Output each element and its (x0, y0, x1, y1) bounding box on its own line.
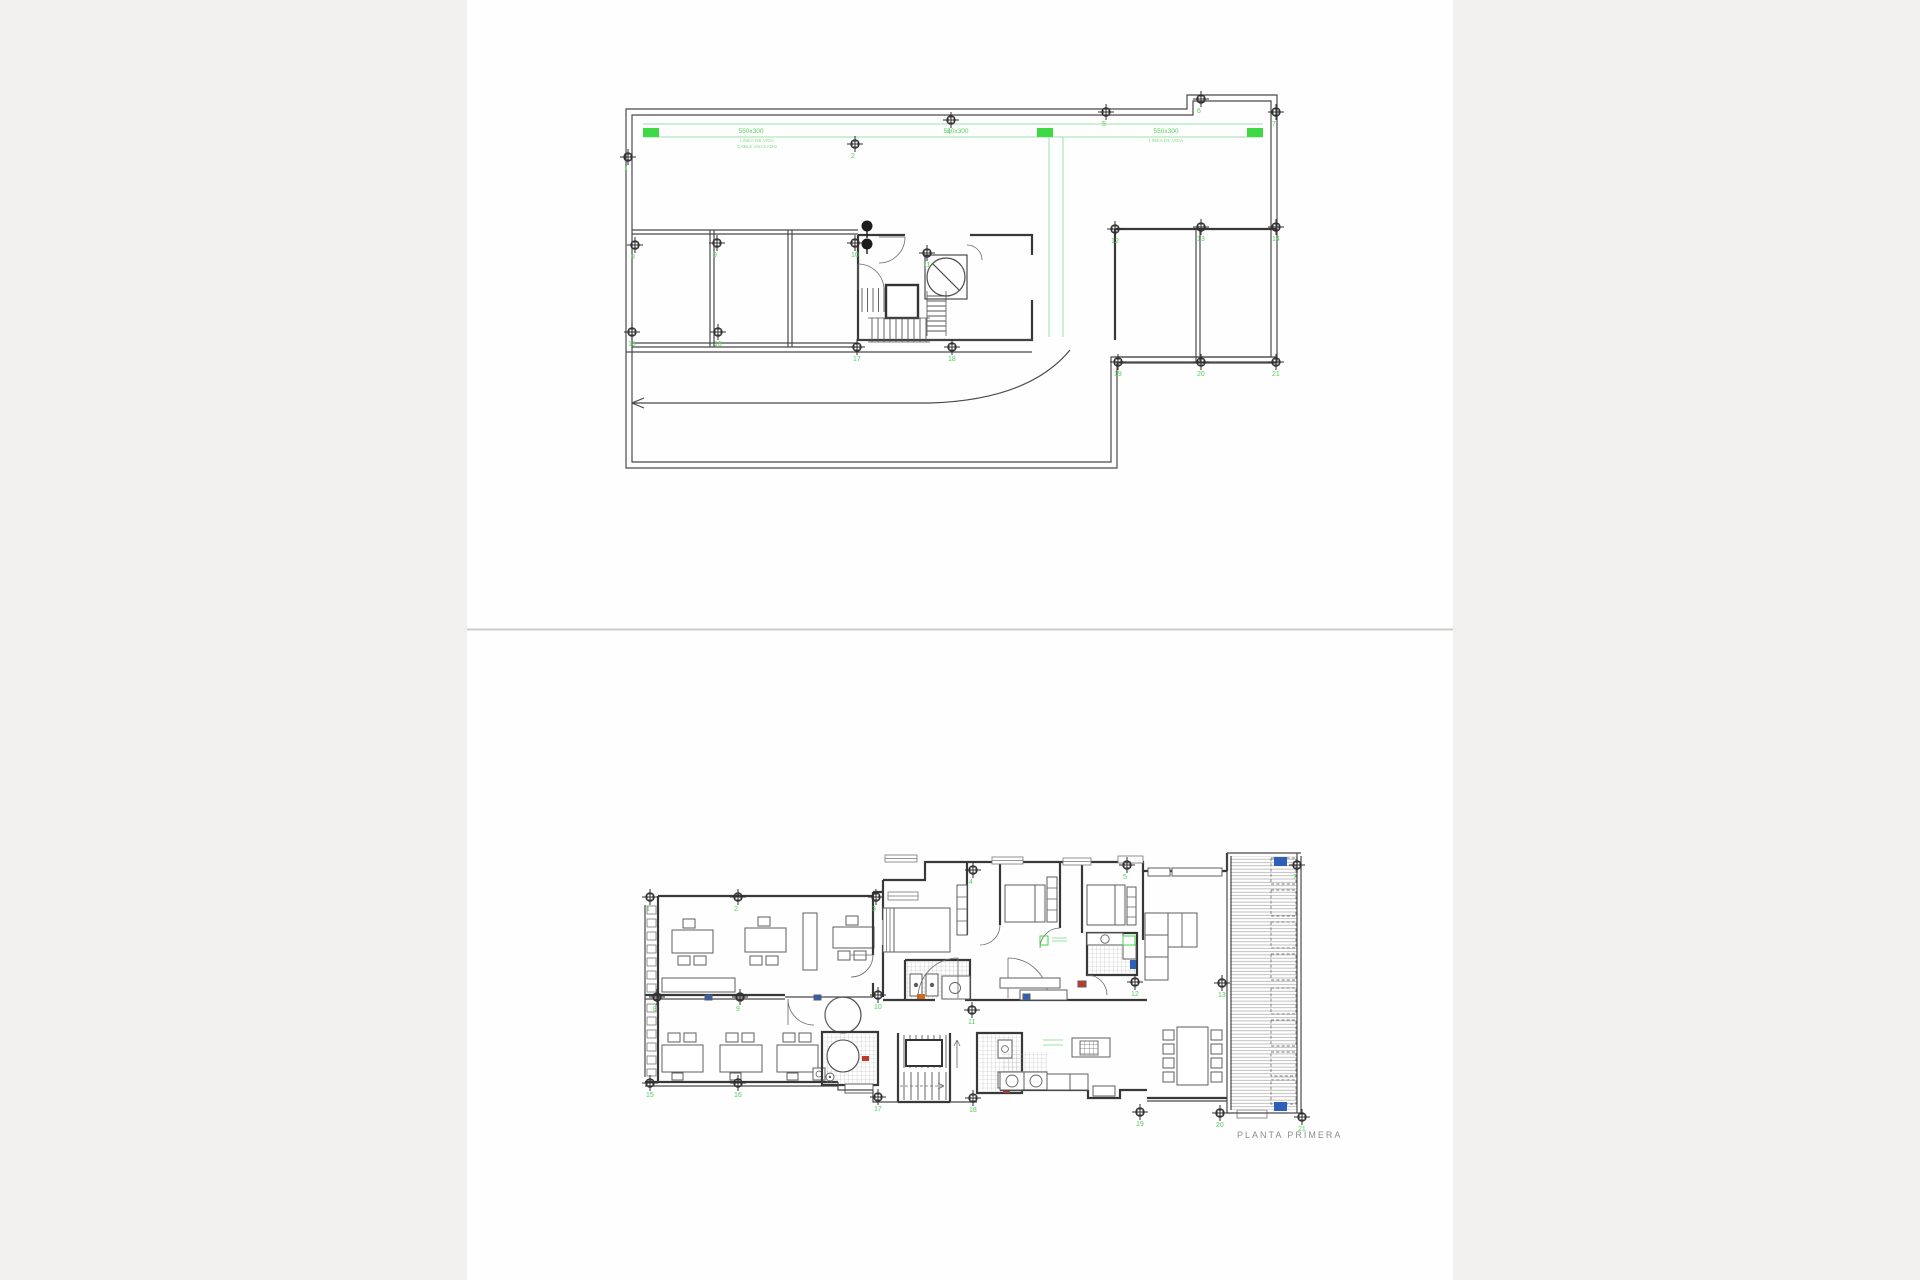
terrace-deck (1227, 853, 1303, 1113)
marker-number: 13 (1218, 992, 1226, 999)
marker-number: 1 (646, 906, 650, 913)
marker-number: 12 (1131, 991, 1139, 998)
marker-number: 6 (1197, 108, 1201, 115)
marker-number: 8 (631, 254, 635, 261)
marker-number: 1 (624, 166, 628, 173)
marker-number: 7 (1272, 121, 1276, 128)
marker-number: 14 (1272, 236, 1280, 243)
chair (683, 919, 695, 928)
green-sub-label: CABLE ANCLADO (737, 144, 777, 150)
marker-number: 2 (851, 153, 855, 160)
marker-number: 19 (1114, 371, 1122, 378)
marker-number: 15 (628, 341, 636, 348)
document-viewer: 550x300LINEA DE VIDACABLE ANCLADO550x300… (0, 0, 1920, 1280)
marker-number: 17 (874, 1106, 882, 1113)
sofa (1145, 913, 1168, 980)
marker-number: 3 (872, 906, 876, 913)
sink-counter (942, 976, 970, 999)
stove (1080, 1041, 1098, 1055)
desk (745, 928, 786, 952)
marker-number: 18 (969, 1107, 977, 1114)
page-top (467, 0, 1453, 628)
marker-number: 7 (1293, 874, 1297, 881)
shower-circle (827, 1040, 859, 1072)
toilet (1123, 945, 1136, 959)
stair-landing (886, 285, 918, 318)
washbasin (813, 1068, 825, 1080)
plan-title: PLANTA PRIMERA (1237, 1130, 1342, 1140)
marker-number: 11 (968, 1019, 975, 1026)
marker-number: 19 (1136, 1121, 1144, 1128)
wardrobe (1047, 877, 1057, 922)
green-sub-label: LINEA DE VIDA (740, 138, 775, 144)
marker-number: 20 (1216, 1122, 1224, 1129)
green-sub-label: LINEA DE VIDA (1149, 138, 1184, 144)
marker-number: 13 (1197, 236, 1205, 243)
desk (777, 1045, 818, 1072)
wardrobe (1127, 887, 1136, 925)
green-anchor-block (1037, 128, 1053, 137)
marker-number: 16 (734, 1092, 742, 1099)
marker-number: 4 (969, 879, 973, 886)
wardrobe (957, 885, 967, 935)
desk (672, 930, 713, 953)
marker-number: 8 (653, 1006, 657, 1013)
desk (720, 1045, 762, 1072)
green-dimension-label: 550x300 (739, 128, 764, 135)
drawing-canvas: 550x300LINEA DE VIDACABLE ANCLADO550x300… (0, 0, 1920, 1280)
marker-number: 21 (1272, 371, 1280, 378)
marker-number: 5 (1102, 121, 1106, 128)
green-dimension-label: 550x300 (1154, 128, 1179, 135)
sofa-chaise (1168, 913, 1197, 947)
green-anchor-block (643, 128, 659, 137)
marker-number: 10 (851, 252, 859, 259)
green-anchor-block (1247, 128, 1263, 137)
marker-number: 12 (1111, 238, 1119, 245)
desk (662, 1045, 703, 1072)
marker-number: 20 (1197, 371, 1205, 378)
cabinet (803, 913, 817, 970)
marker-number: 4 (947, 129, 951, 136)
desk (833, 927, 874, 948)
marker-number: 15 (646, 1092, 654, 1099)
marker-number: 9 (713, 252, 717, 259)
stair-landing (906, 1040, 942, 1066)
dining-table (1177, 1027, 1208, 1085)
marker-number: 17 (853, 356, 861, 363)
sideboard (662, 978, 735, 992)
page-bottom (467, 631, 1453, 1280)
marker-number: 5 (1123, 874, 1127, 881)
bathroom-a (906, 961, 970, 999)
marker-number: 10 (874, 1004, 882, 1011)
marker-number: 16 (714, 341, 722, 348)
marker-number: 11 (923, 262, 930, 269)
marker-number: 2 (734, 906, 738, 913)
marker-number: 18 (948, 356, 956, 363)
marker-number: 9 (736, 1006, 740, 1013)
